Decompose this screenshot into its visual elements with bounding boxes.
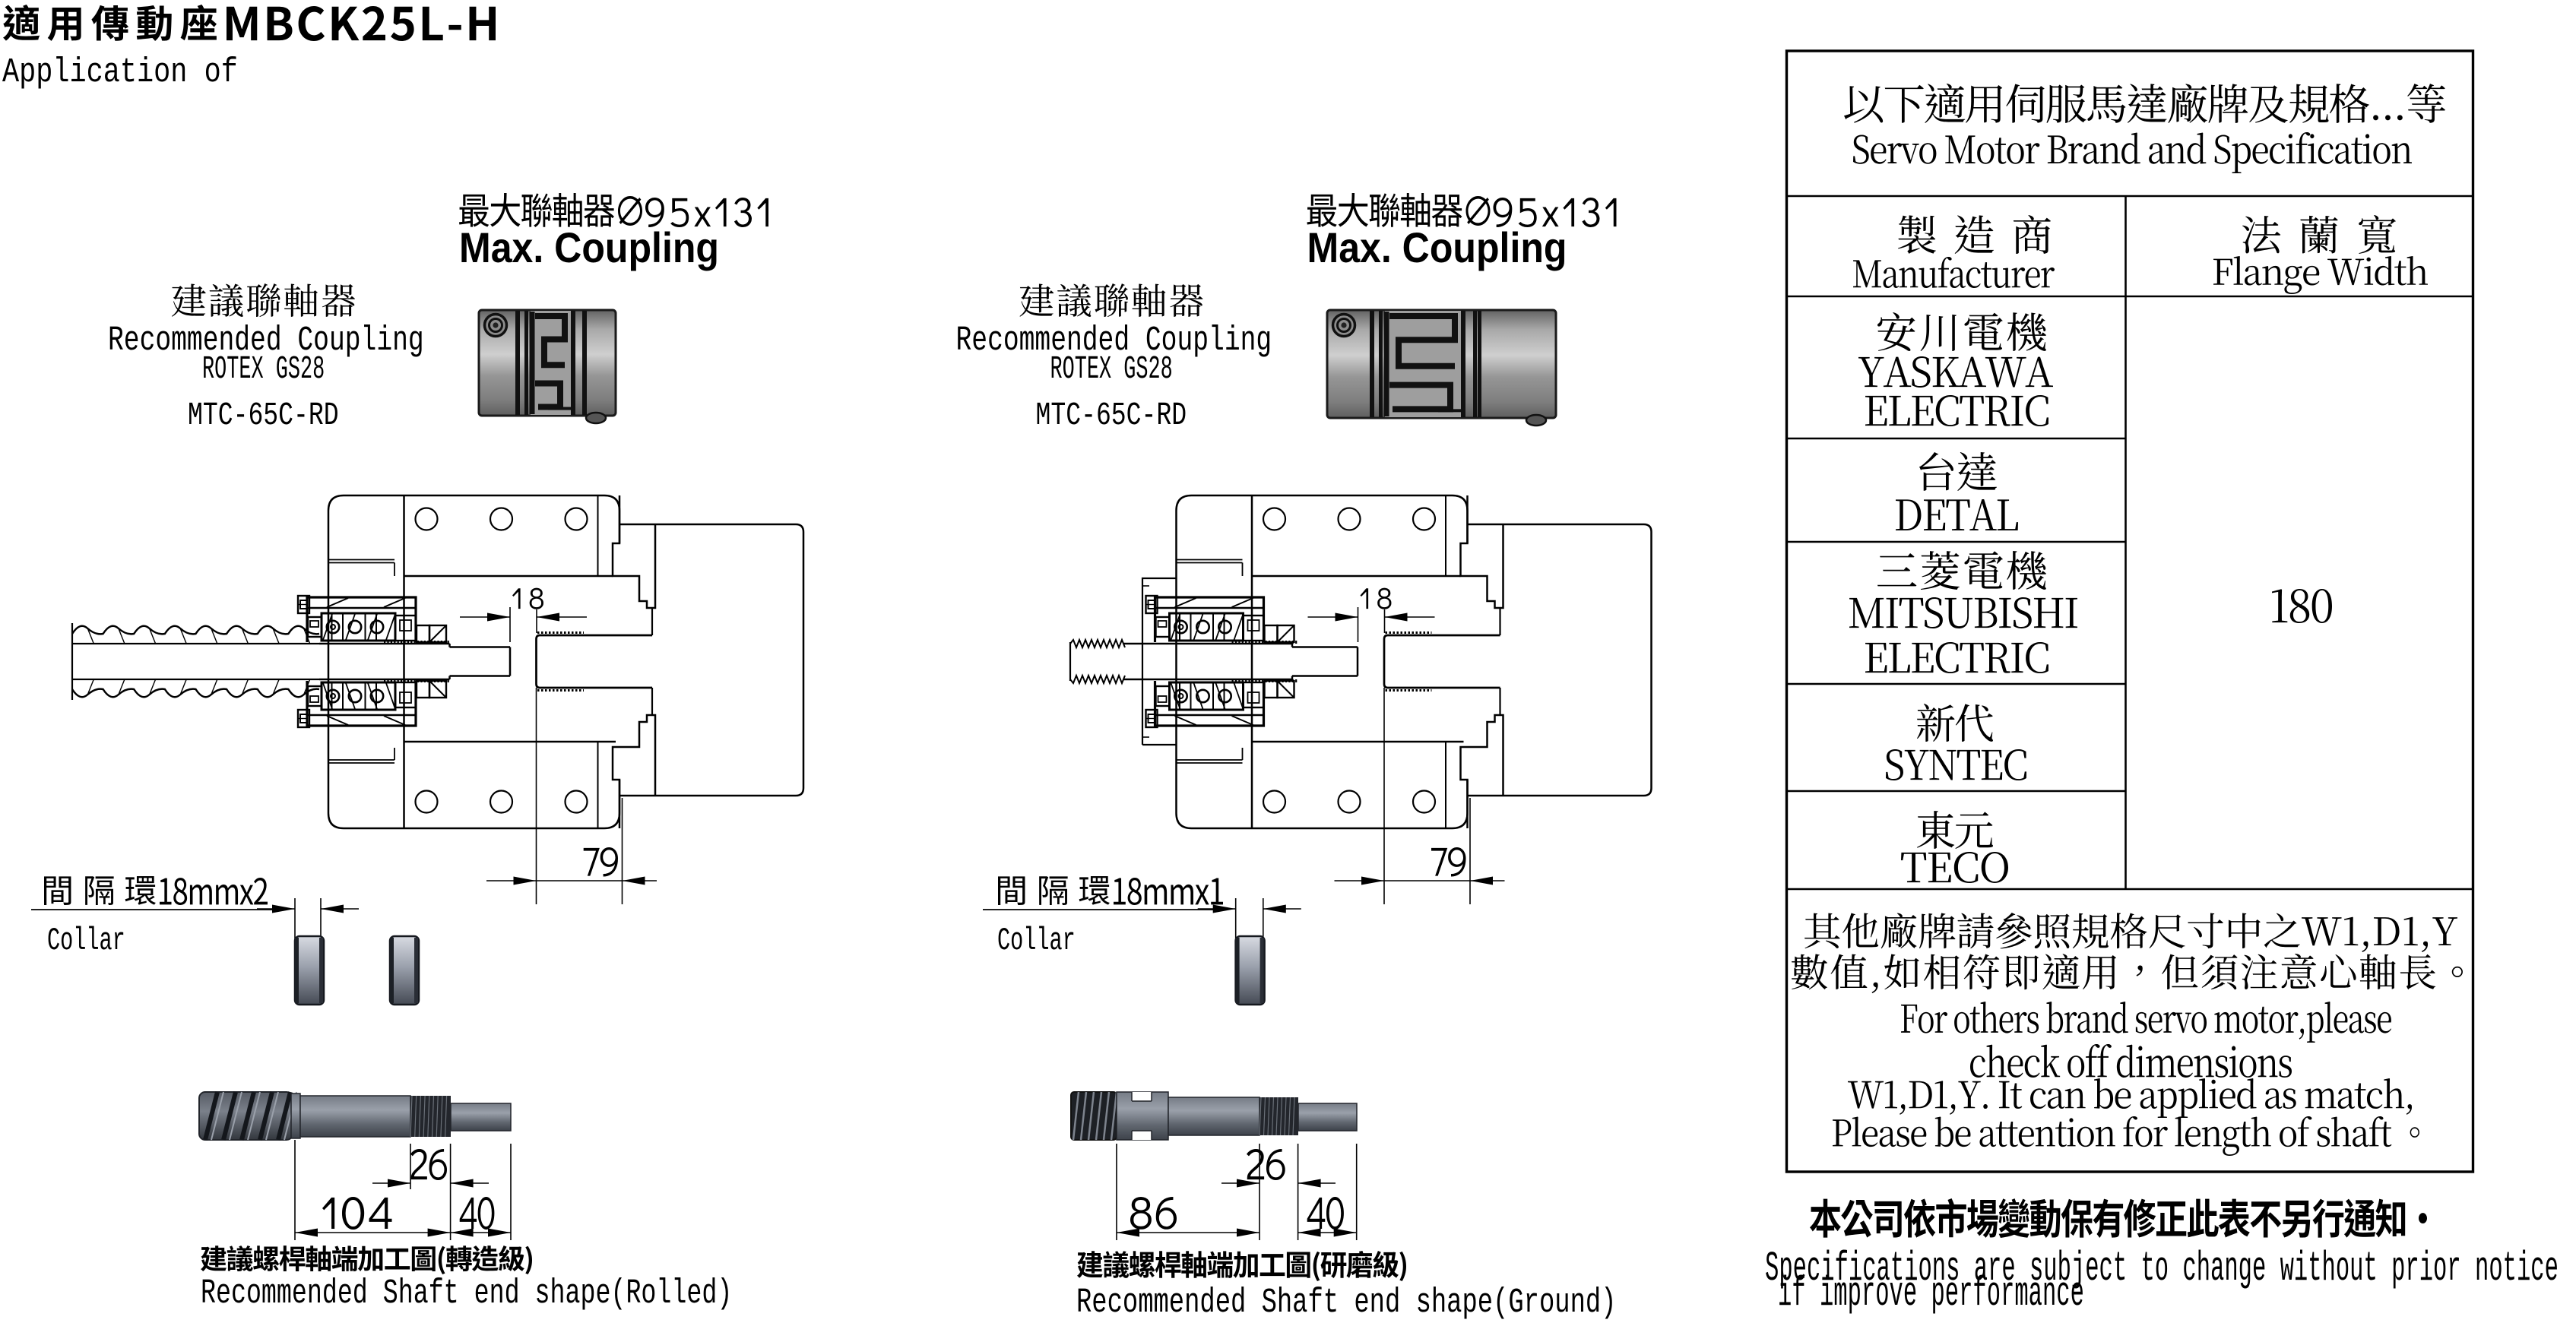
svg-text:Recommended Shaft end shape(Ro: Recommended Shaft end shape(Rolled) — [201, 1274, 732, 1312]
svg-text:MTC-65C-RD: MTC-65C-RD — [1036, 397, 1187, 434]
svg-text:MTC-65C-RD: MTC-65C-RD — [188, 397, 339, 434]
svg-text:ROTEX GS28: ROTEX GS28 — [1050, 350, 1173, 388]
svg-text:Collar: Collar — [47, 923, 125, 959]
svg-text:Collar: Collar — [997, 923, 1076, 959]
svg-text:Max. Coupling: Max. Coupling — [459, 223, 719, 271]
svg-text:ROTEX GS28: ROTEX GS28 — [202, 350, 325, 388]
svg-text:if improve performance: if improve performance — [1778, 1271, 2084, 1318]
svg-text:Application of: Application of — [2, 54, 238, 92]
svg-text:Recommended Shaft end shape(Gr: Recommended Shaft end shape(Ground) — [1076, 1283, 1616, 1319]
svg-text:Max. Coupling: Max. Coupling — [1307, 223, 1567, 271]
